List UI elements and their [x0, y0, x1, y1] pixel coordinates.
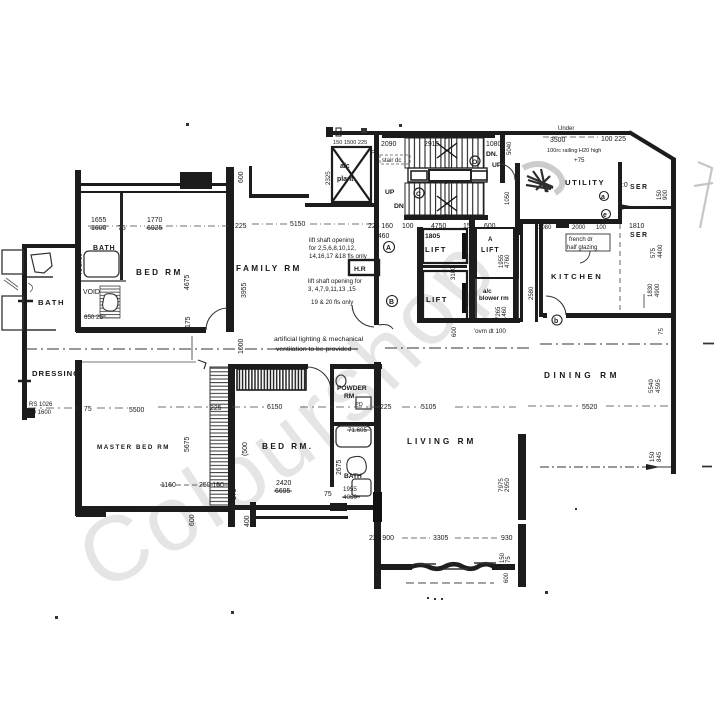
svg-text:a/c: a/c	[340, 163, 350, 170]
svg-text:FH: FH	[371, 151, 379, 157]
svg-text:1810: 1810	[629, 223, 644, 230]
svg-text:225: 225	[210, 405, 222, 412]
svg-text:6925: 6925	[147, 225, 162, 232]
svg-text:225: 225	[235, 223, 247, 230]
svg-text:DRESSING: DRESSING	[32, 369, 80, 378]
svg-text:for 2,5,6,8,10,12,: for 2,5,6,8,10,12,	[309, 245, 356, 252]
svg-text:FAMILY RM: FAMILY RM	[236, 264, 302, 273]
svg-text:blower rm: blower rm	[479, 295, 509, 302]
svg-text:75: 75	[658, 328, 665, 335]
svg-text:1955: 1955	[343, 486, 357, 493]
svg-text:1080: 1080	[486, 141, 501, 148]
svg-text:175: 175	[185, 316, 192, 328]
svg-text:2325: 2325	[325, 171, 332, 185]
svg-text::0: :0	[622, 182, 628, 189]
svg-text:575: 575	[651, 247, 657, 258]
svg-text:650 25: 650 25	[84, 314, 103, 321]
svg-text:1050: 1050	[505, 191, 511, 205]
svg-text:UTILITY: UTILITY	[565, 178, 605, 187]
svg-text:4760: 4760	[505, 254, 511, 268]
svg-text:e: e	[603, 212, 607, 219]
svg-text:plant: plant	[337, 176, 354, 183]
svg-text:100 225: 100 225	[601, 136, 626, 143]
svg-text:french dr: french dr	[569, 237, 593, 243]
svg-text:DN.: DN.	[486, 151, 498, 158]
svg-text:B: B	[389, 299, 394, 306]
svg-text:1830: 1830	[648, 283, 654, 297]
svg-text:A: A	[488, 236, 493, 243]
svg-text:2000: 2000	[572, 225, 586, 231]
svg-text:2090: 2090	[381, 141, 396, 148]
svg-text:A: A	[386, 245, 391, 252]
svg-text:stair dc: stair dc	[382, 158, 401, 164]
svg-text:5540: 5540	[648, 379, 655, 393]
svg-text:4400: 4400	[658, 244, 664, 258]
svg-text:100rc railing H20 high: 100rc railing H20 high	[547, 148, 601, 154]
svg-text:MASTER BED RM: MASTER BED RM	[97, 444, 170, 451]
svg-text:150 1500 225: 150 1500 225	[333, 140, 367, 146]
svg-text:+75: +75	[574, 157, 585, 164]
svg-text:71.605: 71.605	[348, 427, 367, 434]
svg-text:6150: 6150	[267, 404, 282, 411]
svg-text:100 1600: 100 1600	[26, 410, 52, 416]
svg-text:SER: SER	[630, 184, 648, 191]
svg-text:3100: 3100	[451, 266, 457, 280]
svg-text:3300 B: 3300 B	[110, 508, 129, 514]
svg-text:3955: 3955	[241, 283, 248, 298]
svg-text:2580: 2580	[529, 286, 535, 300]
svg-text:1460: 1460	[502, 306, 508, 320]
svg-text:600: 600	[504, 572, 510, 583]
svg-text:RS 1026: RS 1026	[29, 402, 53, 408]
svg-text:POWDER: POWDER	[337, 385, 367, 392]
svg-text:DINING RM: DINING RM	[544, 371, 620, 380]
svg-text:1160: 1160	[161, 482, 176, 489]
svg-text:4060: 4060	[343, 494, 357, 501]
svg-text:artificial lighting & mechanic: artificial lighting & mechanical	[274, 336, 364, 343]
svg-text:a/c: a/c	[483, 288, 492, 295]
svg-text:LIFT: LIFT	[425, 245, 447, 254]
svg-text:600: 600	[189, 514, 196, 526]
svg-text:6695: 6695	[275, 488, 290, 495]
svg-text:100: 100	[596, 225, 607, 231]
svg-text:75: 75	[84, 406, 92, 413]
svg-text:'ovm dt 100: 'ovm dt 100	[474, 328, 506, 335]
svg-text:4675: 4675	[184, 275, 191, 290]
svg-text:KITCHEN: KITCHEN	[551, 272, 603, 281]
svg-text:3500: 3500	[550, 137, 565, 144]
svg-text:5105: 5105	[421, 404, 436, 411]
svg-text:845: 845	[656, 451, 663, 462]
svg-text:half glazing: half glazing	[567, 245, 597, 251]
svg-text:H.R: H.R	[354, 266, 366, 273]
svg-text:4900: 4900	[655, 283, 661, 297]
svg-text:5675: 5675	[184, 437, 191, 452]
svg-text:19 & 20 fls only: 19 & 20 fls only	[311, 299, 354, 306]
svg-text:5040: 5040	[507, 141, 513, 155]
svg-text:a: a	[601, 194, 605, 201]
svg-text:5520: 5520	[582, 404, 597, 411]
svg-text:BATH: BATH	[38, 298, 65, 307]
svg-text:1000: 1000	[238, 339, 245, 354]
svg-text:LIFT: LIFT	[426, 295, 448, 304]
svg-text:1460: 1460	[374, 233, 389, 240]
svg-text:BATH: BATH	[93, 245, 116, 252]
svg-text:(500: (500	[242, 442, 249, 456]
svg-text:2675: 2675	[336, 460, 343, 475]
svg-text:C: C	[416, 191, 421, 198]
svg-text:LIVING RM: LIVING RM	[407, 437, 476, 446]
svg-text:lift shaft opening: lift shaft opening	[309, 237, 355, 244]
svg-text:2420: 2420	[276, 480, 291, 487]
svg-text:225 160: 225 160	[368, 223, 393, 230]
svg-text:4595: 4595	[655, 379, 662, 393]
svg-text:75 2750: 75 2750	[78, 253, 84, 275]
svg-text:RM: RM	[344, 393, 355, 400]
svg-text:2950: 2950	[504, 478, 511, 492]
svg-text:UP: UP	[492, 162, 502, 169]
svg-text:LIFT: LIFT	[481, 247, 500, 254]
svg-text:5500: 5500	[129, 407, 144, 414]
svg-text:600: 600	[452, 326, 458, 337]
svg-text:Under: Under	[558, 126, 574, 132]
svg-text:75: 75	[506, 556, 512, 563]
svg-text:900: 900	[663, 189, 669, 200]
svg-text:175: 175	[231, 488, 238, 500]
svg-text:5150: 5150	[290, 221, 305, 228]
svg-text:75: 75	[324, 491, 332, 498]
svg-text:SER: SER	[630, 232, 648, 239]
svg-text:lift shaft opening for: lift shaft opening for	[308, 278, 362, 285]
svg-text:3, 4,7,9,11,13 ,15: 3, 4,7,9,11,13 ,15	[308, 286, 356, 293]
svg-text:225 900: 225 900	[369, 535, 394, 542]
svg-text:2915: 2915	[424, 141, 439, 148]
svg-text:1805: 1805	[425, 233, 440, 240]
svg-text:DN: DN	[394, 203, 404, 210]
svg-text:1655: 1655	[91, 217, 106, 224]
svg-text:b: b	[554, 318, 558, 325]
svg-text:250 150: 250 150	[199, 482, 224, 489]
svg-text:O: O	[472, 159, 477, 166]
svg-text:225: 225	[380, 404, 392, 411]
svg-text:UP: UP	[385, 189, 395, 196]
svg-text:400: 400	[244, 515, 251, 527]
svg-text:BED RM: BED RM	[136, 268, 183, 277]
svg-text:BED RM.: BED RM.	[262, 442, 313, 451]
svg-text:3305: 3305	[433, 535, 448, 542]
svg-text:600: 600	[238, 171, 245, 183]
svg-text:VOID: VOID	[83, 289, 100, 296]
svg-text:1770: 1770	[147, 217, 162, 224]
svg-text:100: 100	[402, 223, 414, 230]
svg-text:930: 930	[501, 535, 513, 542]
svg-text:150: 150	[649, 451, 656, 462]
